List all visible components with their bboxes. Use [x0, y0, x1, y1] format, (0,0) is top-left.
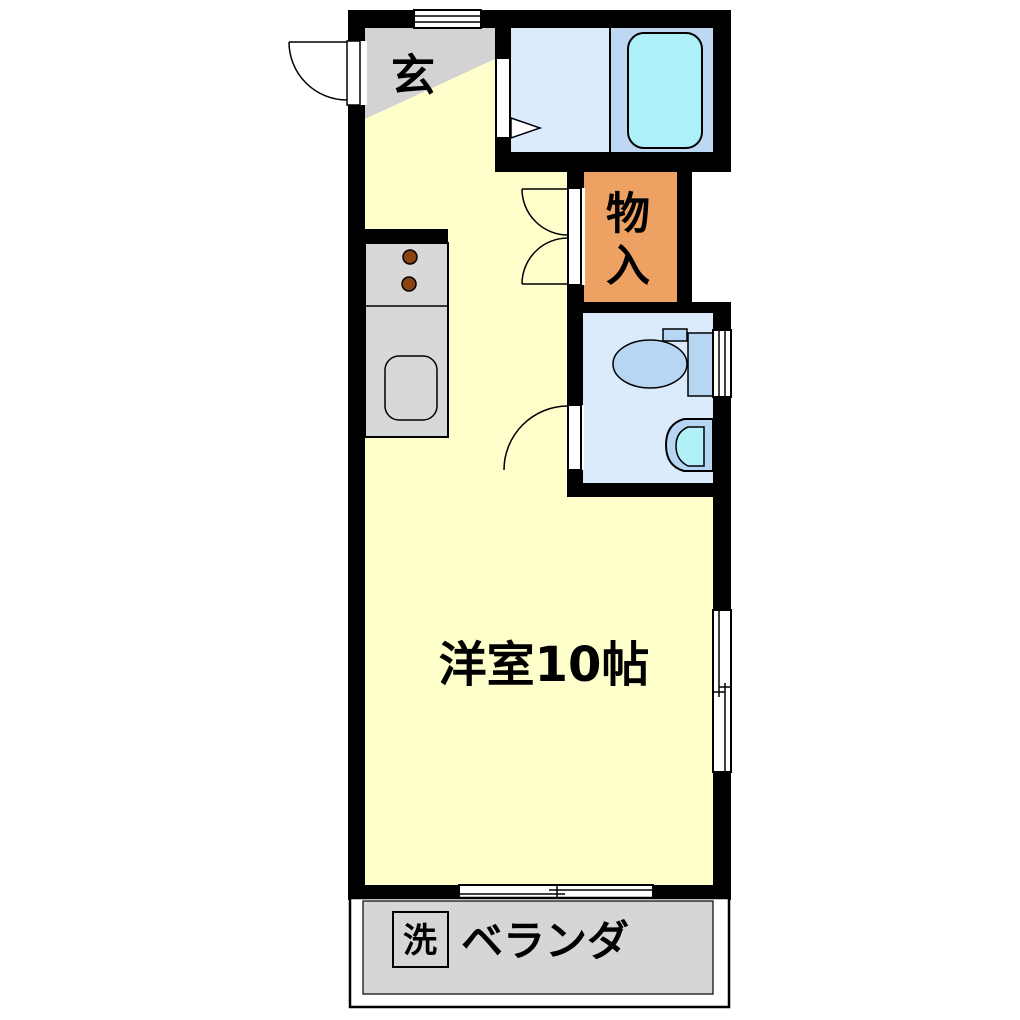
window-frame — [713, 610, 731, 772]
wash-basin-inner — [676, 427, 704, 466]
wall-left — [348, 10, 365, 898]
exterior-notch — [692, 172, 714, 303]
floor-plan: 玄 物 入 洋室10帖 洗 ベランダ — [0, 0, 1020, 1020]
kitchen-burner-icon — [403, 250, 417, 264]
window-top — [414, 10, 481, 28]
label-washer: 洗 — [403, 921, 437, 961]
entrance-door-arc — [289, 42, 347, 100]
window-right-sliding — [713, 610, 731, 772]
kitchen-burner-icon — [402, 277, 416, 291]
toilet-door-panel — [568, 405, 581, 470]
kitchen-counter — [365, 243, 448, 437]
label-veranda: ベランダ — [461, 917, 629, 966]
window-toilet — [713, 330, 731, 397]
closet-door-panel — [568, 188, 581, 285]
bathroom-door-panel — [496, 58, 510, 138]
window-frame — [414, 10, 481, 28]
label-closet-char: 物 — [606, 189, 650, 240]
floor-plan-canvas: 玄 物 入 洋室10帖 洗 ベランダ — [0, 0, 1020, 1020]
toilet-bowl — [613, 340, 687, 388]
wall-closet-bottom — [567, 302, 731, 313]
wall-top — [348, 10, 731, 28]
wall-toilet-bottom — [567, 483, 731, 497]
toilet-flush-unit — [663, 329, 687, 341]
wall-closet-right — [677, 172, 692, 302]
label-closet-char: 入 — [606, 241, 650, 292]
toilet-tank — [688, 333, 713, 396]
kitchen-backsplash — [364, 229, 448, 243]
entrance-door-leaf — [347, 41, 360, 105]
wall-right-upper — [713, 10, 731, 172]
label-living-room: 洋室10帖 — [439, 637, 650, 693]
window-frame — [713, 330, 731, 397]
label-genkan: 玄 — [391, 51, 435, 102]
wall-bathroom-bottom — [495, 152, 731, 172]
bathtub — [628, 33, 702, 148]
